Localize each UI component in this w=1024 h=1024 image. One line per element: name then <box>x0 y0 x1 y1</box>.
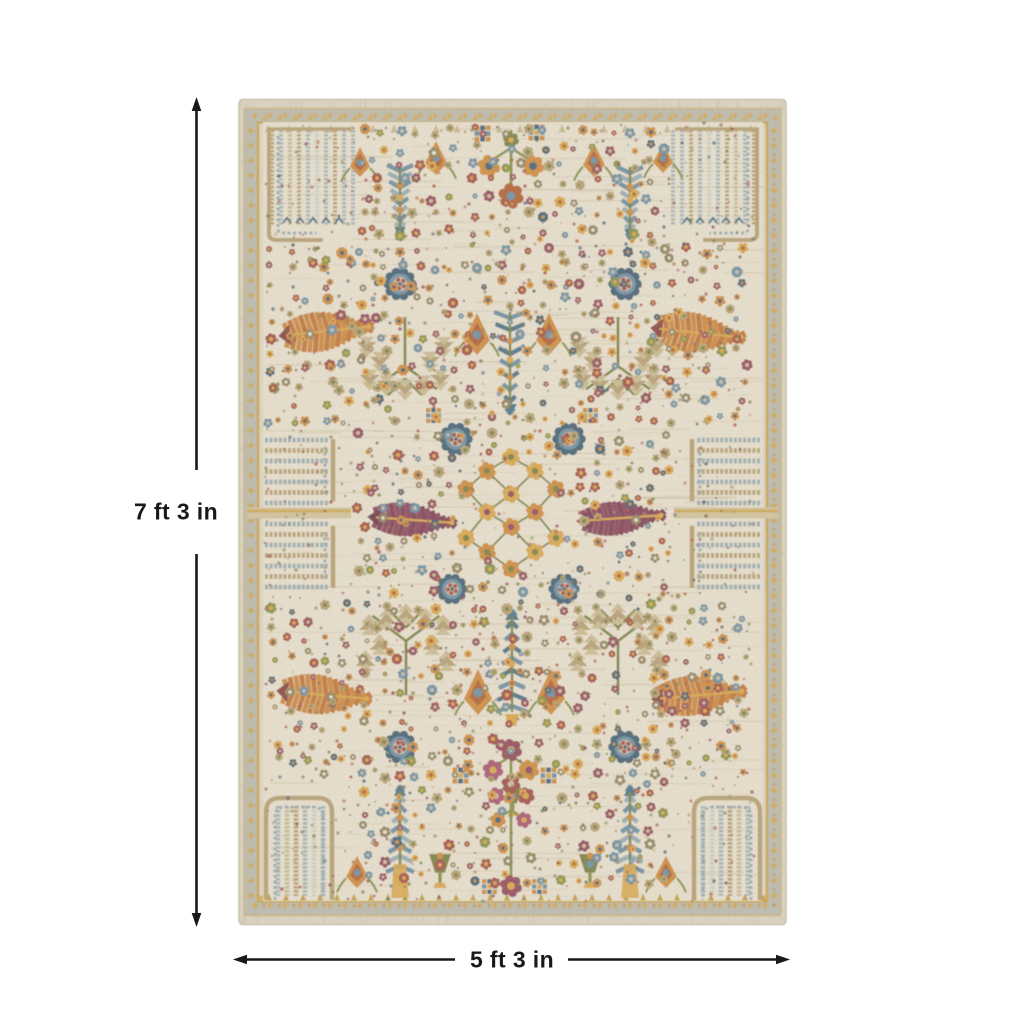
svg-text:5 ft 3 in: 5 ft 3 in <box>470 947 554 973</box>
svg-text:7 ft 3 in: 7 ft 3 in <box>134 499 218 525</box>
